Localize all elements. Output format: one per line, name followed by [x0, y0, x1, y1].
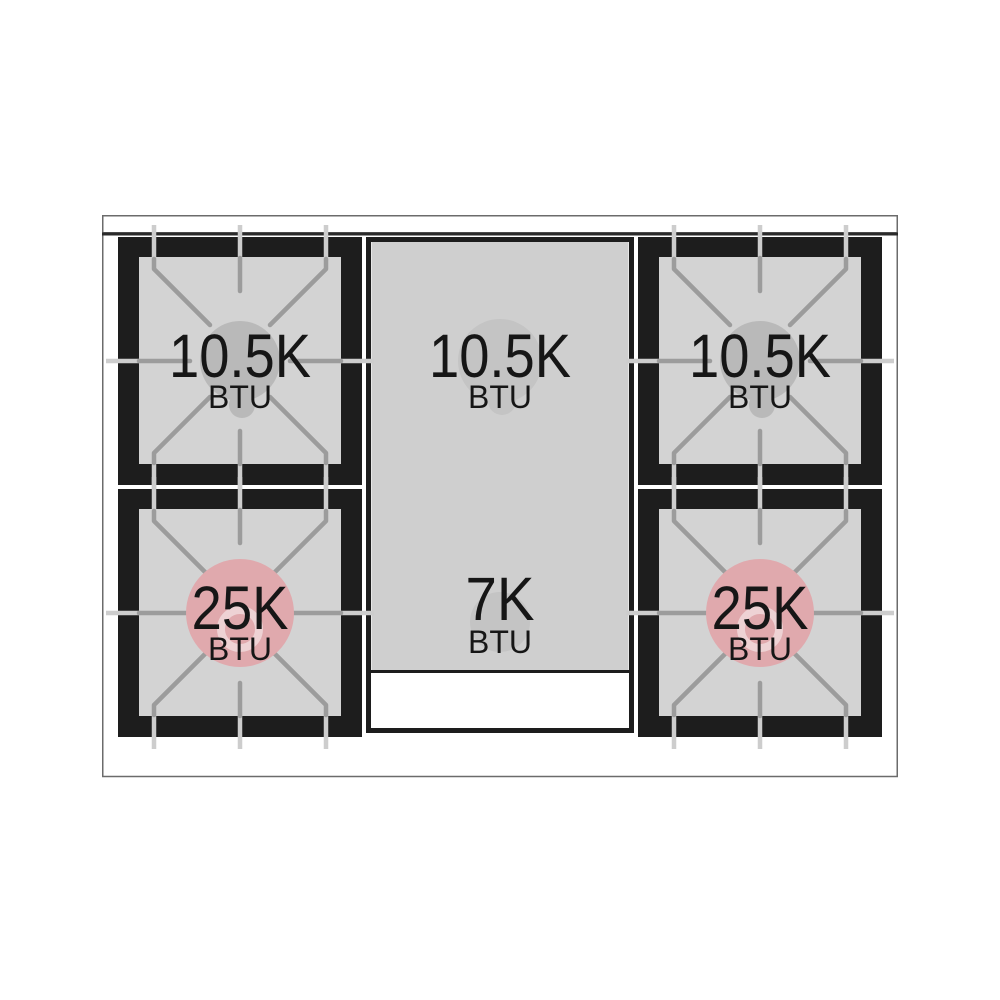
burner-unit-label: BTU — [208, 631, 272, 667]
burner-unit-label: BTU — [728, 631, 792, 667]
burner-unit-label: BTU — [468, 624, 532, 660]
burner-bottom-center: 7K BTU — [466, 565, 535, 660]
burner-bottom-right: 25K BTU — [706, 559, 814, 667]
burner-rating-label: 7K — [466, 565, 535, 633]
burner-bottom-left: 25K BTU — [186, 559, 294, 667]
range-back-ledge — [103, 216, 898, 233]
cooktop-diagram: 10.5K BTU 10.5K BTU 10.5K BTU 25K BTU 7 — [0, 0, 1000, 1000]
cooktop-diagram-svg: 10.5K BTU 10.5K BTU 10.5K BTU 25K BTU 7 — [0, 0, 1000, 1000]
burner-unit-label: BTU — [468, 379, 532, 415]
burner-unit-label: BTU — [208, 379, 272, 415]
burner-unit-label: BTU — [728, 379, 792, 415]
